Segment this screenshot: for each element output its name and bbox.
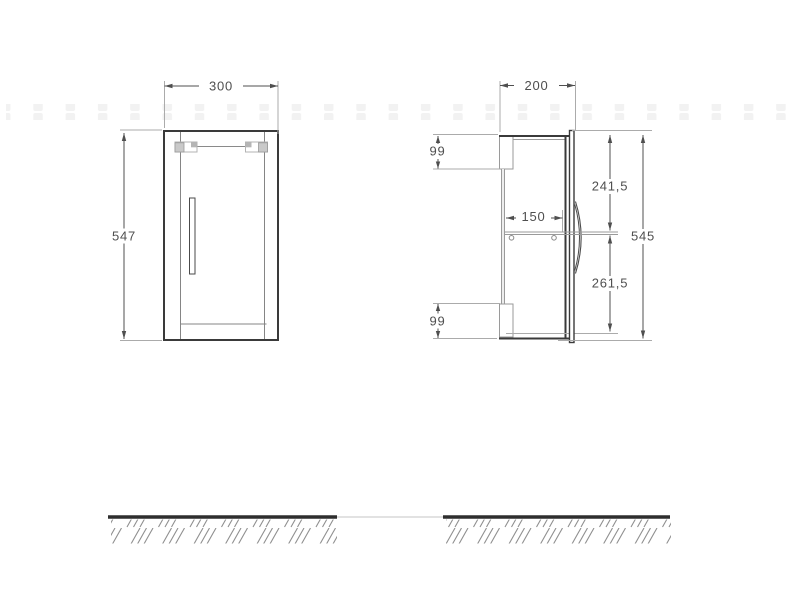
left-bracket-screw <box>191 142 197 147</box>
shelf-depth-dimension: 150 <box>506 209 563 225</box>
side-bottom-offset-label: 99 <box>429 314 445 329</box>
arrow-down <box>436 162 440 169</box>
ground-hatch-left <box>111 520 337 544</box>
shelf-depth-label: 150 <box>521 209 545 224</box>
shelf-pin-back <box>509 236 514 241</box>
arrow-up <box>122 133 126 141</box>
side-door-panel <box>570 131 575 343</box>
side-bottom-wall-block <box>500 304 514 337</box>
front-height-dimension: 547 <box>106 133 142 339</box>
arrow-up <box>436 304 440 311</box>
arrow-left <box>500 83 508 87</box>
arrow-down <box>436 331 440 338</box>
shelf-to-bottom-dimension: 261,5 <box>589 236 631 332</box>
arrow-right <box>567 83 575 87</box>
right-bracket-screw <box>246 142 252 147</box>
front-width-label: 300 <box>209 79 233 94</box>
technical-drawing: 300 547 <box>0 0 800 609</box>
front-door-handle <box>190 198 196 274</box>
top-to-shelf-dimension: 241,5 <box>589 135 631 231</box>
front-cabinet-outline <box>164 131 278 340</box>
shelf-to-bottom-label: 261,5 <box>592 276 629 291</box>
arrow-right <box>555 216 563 220</box>
side-top-wall-block <box>500 136 514 169</box>
watermark-band <box>6 104 795 120</box>
side-bottom-offset-dimension: 99 <box>424 304 451 338</box>
ground <box>108 517 671 544</box>
ground-hatch-right <box>446 520 671 544</box>
shelf-pin-front <box>552 236 557 241</box>
side-height-label: 545 <box>631 229 655 244</box>
arrow-left <box>506 216 514 220</box>
side-top-offset-dimension: 99 <box>424 136 451 169</box>
side-depth-dimension: 200 <box>500 78 575 94</box>
side-height-dimension: 545 <box>622 135 664 339</box>
arrow-down <box>122 331 126 339</box>
arrow-up <box>608 236 612 244</box>
front-width-dimension: 300 <box>165 78 279 94</box>
arrow-up <box>641 135 645 143</box>
side-depth-label: 200 <box>524 78 548 93</box>
arrow-up <box>436 136 440 143</box>
arrow-up <box>608 135 612 143</box>
front-height-label: 547 <box>112 229 136 244</box>
left-bracket-pad <box>175 143 184 152</box>
top-to-shelf-label: 241,5 <box>592 179 629 194</box>
arrow-left <box>165 84 173 88</box>
right-bracket-pad <box>259 143 268 152</box>
arrow-down <box>608 324 612 332</box>
arrow-down <box>608 223 612 231</box>
arrow-right <box>270 84 278 88</box>
side-top-offset-label: 99 <box>429 144 445 159</box>
arrow-down <box>641 331 645 339</box>
